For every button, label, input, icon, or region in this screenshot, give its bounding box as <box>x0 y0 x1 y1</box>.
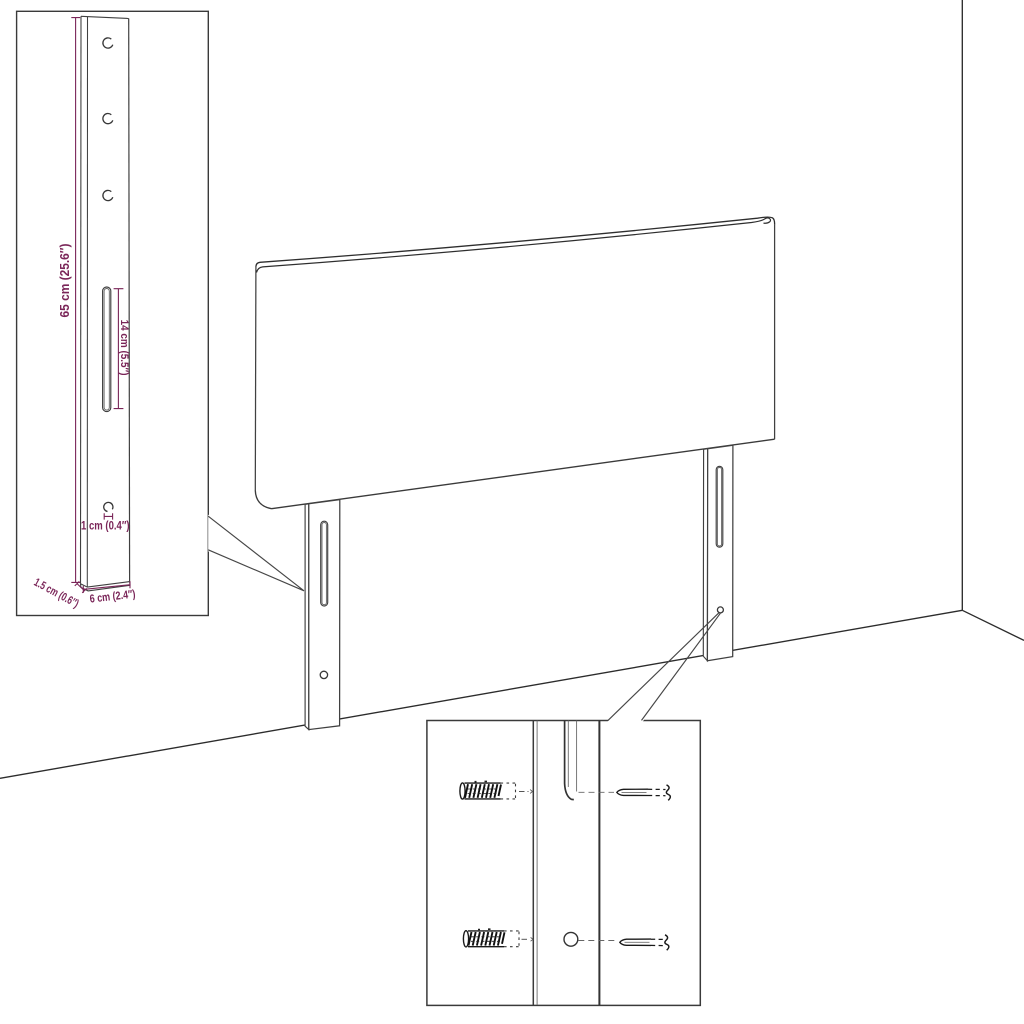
svg-text:65 cm (25.6″): 65 cm (25.6″) <box>57 244 72 318</box>
svg-text:1 cm (0.4″): 1 cm (0.4″) <box>81 520 130 532</box>
svg-text:14 cm (5.5″): 14 cm (5.5″) <box>118 320 130 376</box>
